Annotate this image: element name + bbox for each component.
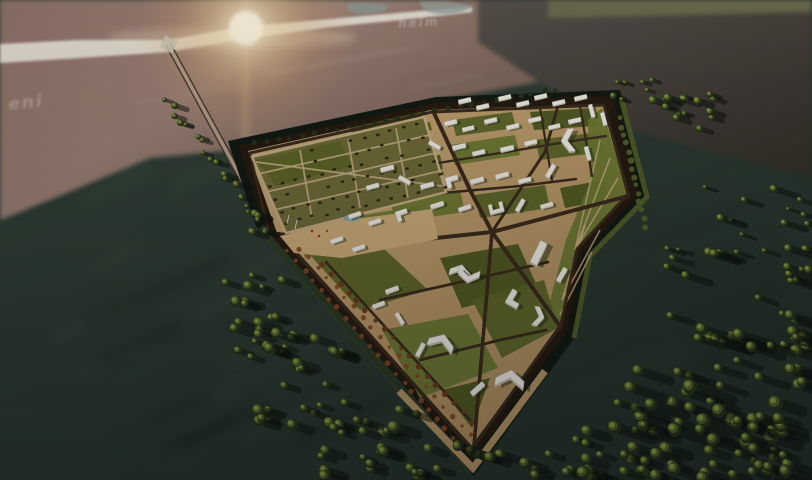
- scene-canvas: eni heim: [0, 0, 812, 480]
- masterplan-render: eni heim: [0, 0, 812, 480]
- dusk-tint: [0, 0, 812, 480]
